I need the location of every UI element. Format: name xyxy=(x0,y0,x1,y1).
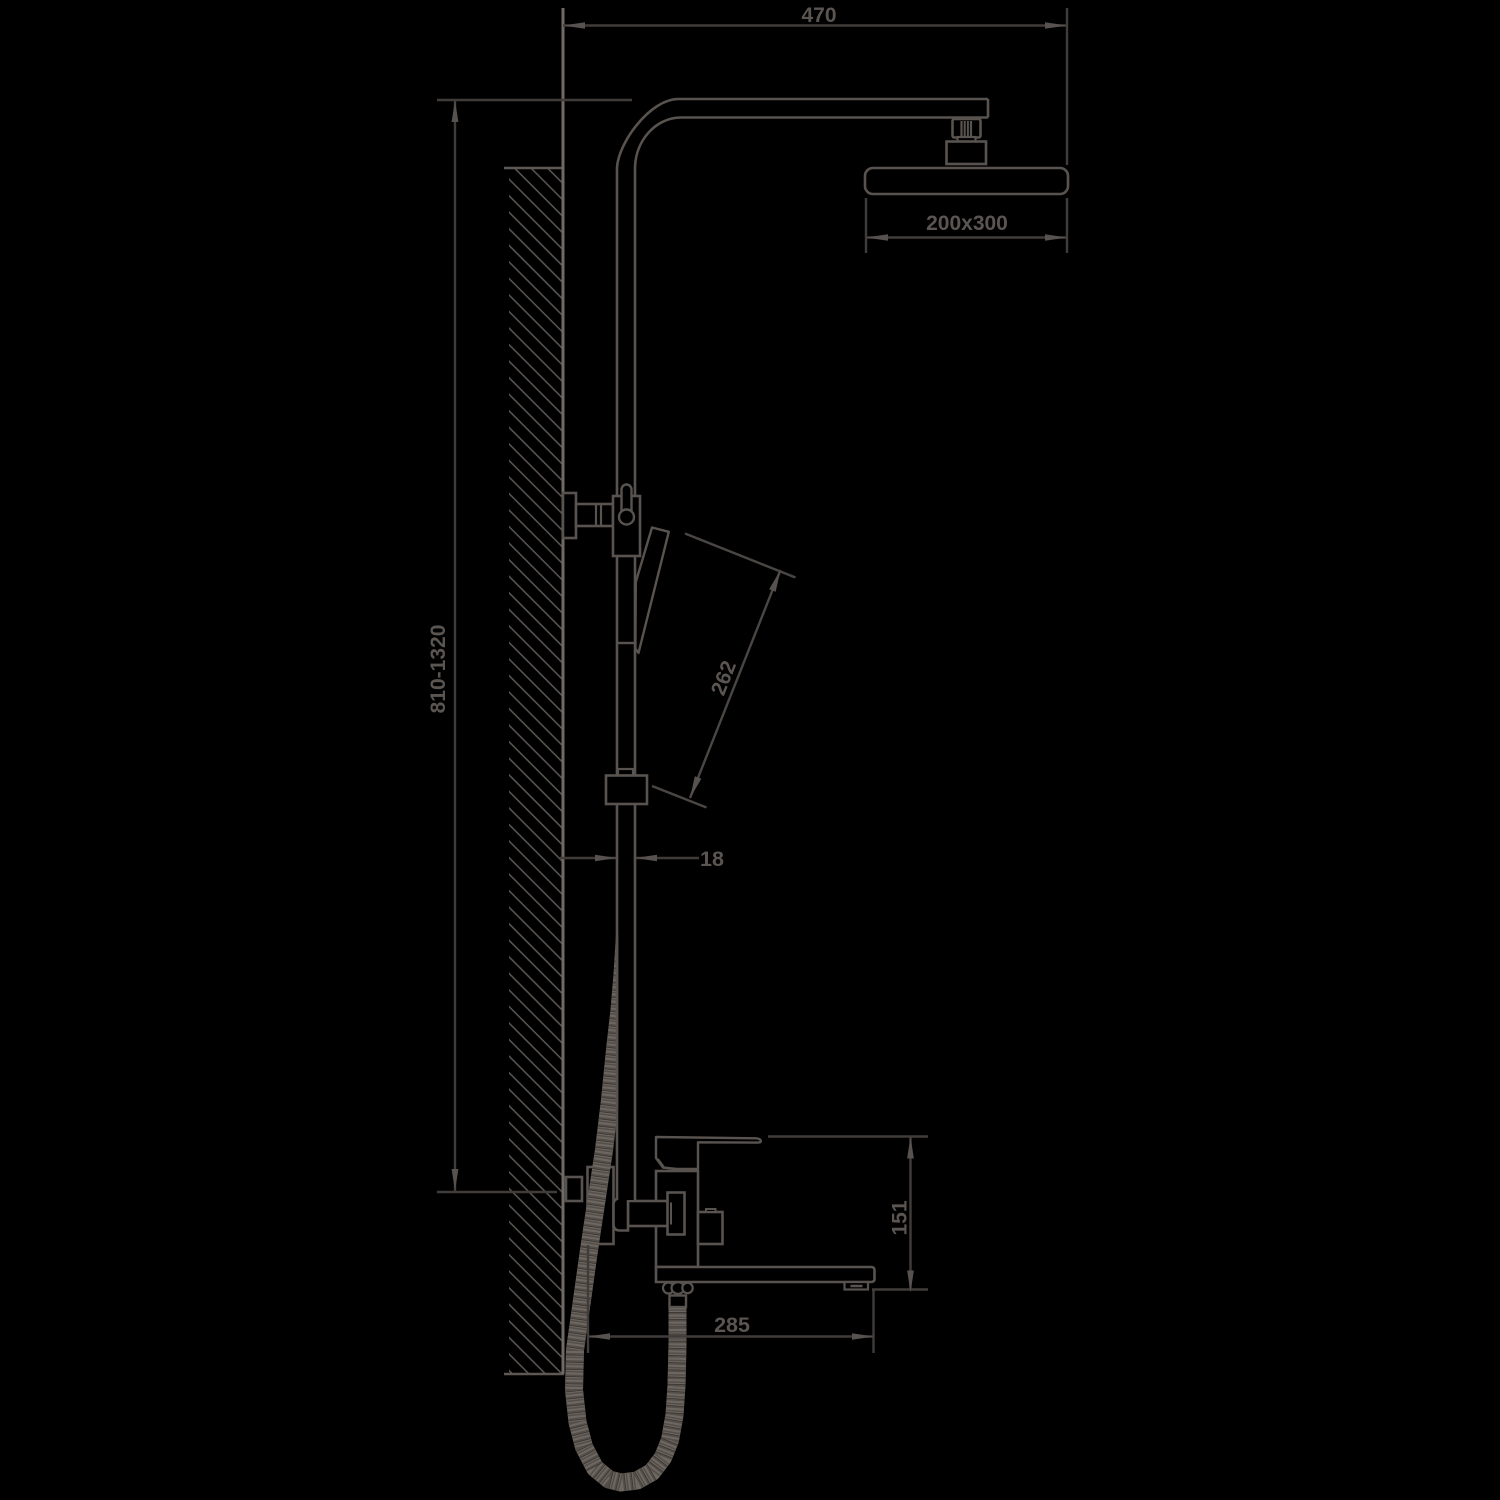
svg-text:151: 151 xyxy=(889,1200,912,1235)
svg-text:810-1320: 810-1320 xyxy=(427,625,450,714)
svg-text:200x300: 200x300 xyxy=(926,212,1008,235)
svg-text:470: 470 xyxy=(801,4,836,27)
svg-text:18: 18 xyxy=(700,847,724,871)
svg-text:285: 285 xyxy=(714,1313,750,1337)
